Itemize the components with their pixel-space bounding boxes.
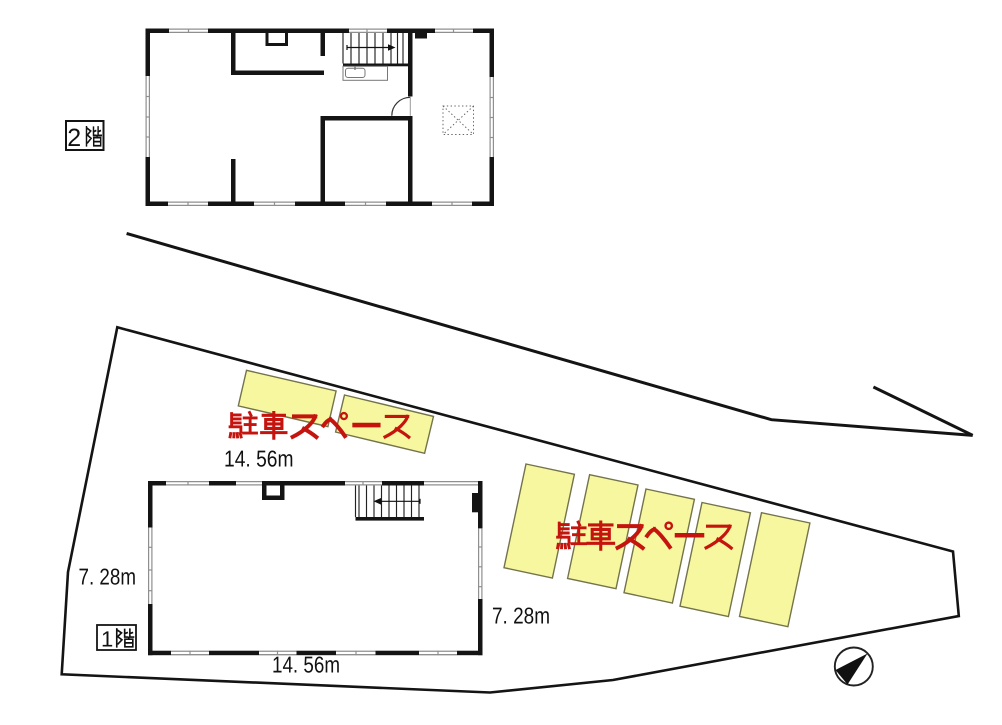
svg-text:7. 28m: 7. 28m [79, 564, 137, 590]
svg-text:14. 56m: 14. 56m [272, 652, 340, 678]
svg-text:14. 56m: 14. 56m [224, 446, 294, 472]
svg-text:7. 28m: 7. 28m [492, 603, 550, 629]
svg-text:2: 2 [67, 124, 81, 152]
svg-text:1: 1 [101, 627, 113, 652]
